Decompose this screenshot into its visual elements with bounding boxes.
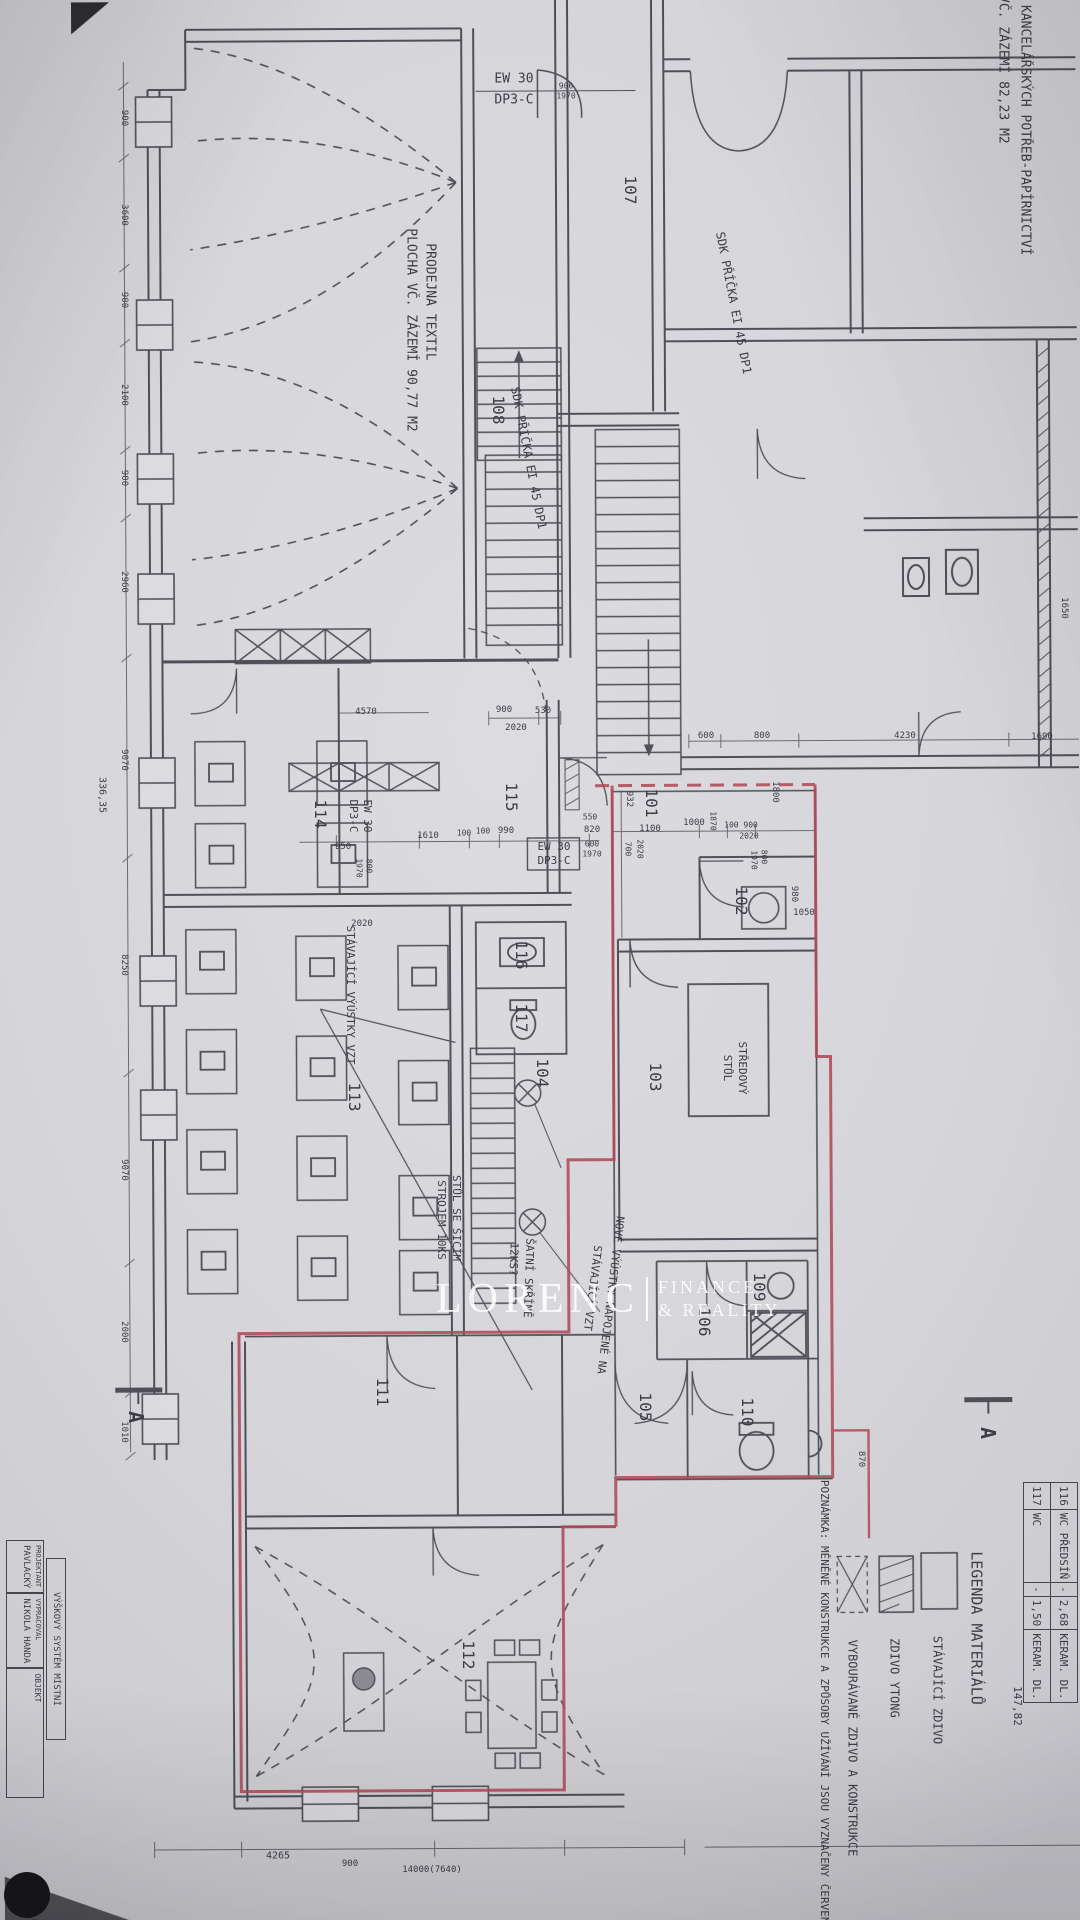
room-114: 114 xyxy=(311,800,329,829)
title-block-note: VÝŠKOVÝ SYSTÉM MÍSTNÍ xyxy=(46,1558,66,1740)
dim: 4570 xyxy=(355,707,377,717)
dim: 1000 xyxy=(683,818,705,828)
door-rating: DP3-C xyxy=(494,94,533,109)
table-note: STŘEDOVÝ xyxy=(736,1042,748,1095)
dim: 932 xyxy=(624,791,634,807)
room-104: 104 xyxy=(533,1059,551,1088)
vent-note: STÁVAJÍCÍ VÝÚSTKY VZT xyxy=(344,925,356,1064)
legend-item: STÁVAJÍCÍ ZDIVO xyxy=(930,1636,943,1744)
sewing-note: STROJEM 10KS xyxy=(435,1180,447,1259)
architect-logo xyxy=(4,1872,50,1918)
dim: 1650 xyxy=(1059,597,1069,619)
legend-title: LEGENDA MATERIÁLŮ xyxy=(968,1551,985,1705)
dim: 1800 xyxy=(770,781,780,803)
room-107: 107 xyxy=(621,176,639,205)
room-115: 115 xyxy=(502,783,520,812)
title-block: VÝŠKOVÝ SYSTÉM MÍSTNÍ PROJEKTANTPAVLACKÝ… xyxy=(2,1540,68,1908)
dim: 1970 xyxy=(582,851,601,860)
door-rating: EW 30 xyxy=(361,799,373,832)
dim: 1970 xyxy=(749,850,758,869)
dim: 530 xyxy=(535,706,551,716)
dim: 900 xyxy=(342,1859,358,1869)
dim: 600 xyxy=(585,841,599,850)
title-block-cell: PROJEKTANTPAVLACKÝ xyxy=(6,1540,44,1593)
dim: 870 xyxy=(856,1451,866,1467)
door-rating: EW 30 xyxy=(494,73,533,88)
dim: 4265 xyxy=(266,1850,290,1861)
dim: 1690 xyxy=(1031,732,1053,742)
room-108: 108 xyxy=(489,396,507,425)
room-116: 116 xyxy=(512,941,530,970)
dim: 900 xyxy=(496,705,512,715)
dim: 2960 xyxy=(119,571,129,593)
dim: 2000 xyxy=(119,1321,129,1343)
dim: 9070 xyxy=(119,749,129,771)
dim: 550 xyxy=(583,814,597,823)
table-note: STŮL xyxy=(721,1055,733,1082)
door-rating: EW 30 xyxy=(537,841,570,853)
dim: 800 xyxy=(364,859,373,873)
dim: 1870 xyxy=(708,811,717,830)
legend-item: ZDIVO YTONG xyxy=(887,1638,900,1717)
room-102: 102 xyxy=(732,887,750,916)
dim: 700 xyxy=(623,842,632,856)
locker-note: ŠATNÍ SKŘÍNĚ xyxy=(520,1238,535,1318)
legend-note: POZNÁMKA: MĚNĚNÉ KONSTRUKCE A ZPŮSOBY UŽ… xyxy=(818,1480,830,1920)
legend-item: VYBOURÁVANÉ ZDIVO A KONSTRUKCE xyxy=(845,1640,858,1857)
dim: 900 xyxy=(119,110,129,126)
locker-note: 12KS? xyxy=(506,1242,519,1276)
door-rating: DP3-C xyxy=(537,855,570,867)
dim: 1100 xyxy=(639,824,661,834)
room-110: 110 xyxy=(738,1398,756,1427)
room-103: 103 xyxy=(646,1063,664,1092)
title-block-cell: VYPRACOVALNIKOLA HANDA xyxy=(6,1593,44,1668)
table-total: 147,82 xyxy=(1011,1686,1023,1726)
dim: 100 xyxy=(457,830,471,839)
room-101: 101 xyxy=(642,789,660,818)
sewing-note: STŮL SE ŠICÍM xyxy=(450,1175,462,1261)
section-mark-a: A xyxy=(125,1411,147,1423)
title-block-rows: PROJEKTANTPAVLACKÝVYPRACOVALNIKOLA HANDA… xyxy=(6,1540,44,1798)
dim: 980 xyxy=(789,886,799,902)
dim: 1050 xyxy=(793,908,815,918)
dim: 1970 xyxy=(556,93,575,102)
room-area-table: 116WC PŘEDSÍŇ-2,68KERAM. DL.117WC-1,50KE… xyxy=(1023,1482,1078,1703)
dim: 2100 xyxy=(119,384,129,406)
dim: 900 xyxy=(119,470,129,486)
dim: 8250 xyxy=(119,954,129,976)
dim: 800 xyxy=(759,850,768,864)
room-109: 109 xyxy=(750,1273,768,1302)
dim-total: 336,35 xyxy=(96,777,107,813)
room-112: 112 xyxy=(459,1641,477,1670)
dim: 950 xyxy=(335,842,351,852)
dim: 900 xyxy=(119,292,129,308)
shop1-area: PLOCHA VČ. ZÁZEMÍ 82,23 M2 xyxy=(995,0,1010,144)
shop2-name: PRODEJNA TEXTIL xyxy=(422,243,437,360)
dim: 1610 xyxy=(417,831,439,841)
shop2-area: PLOCHA VČ. ZÁZEMÍ 90,77 M2 xyxy=(403,228,418,432)
room-113: 113 xyxy=(345,1083,363,1112)
room-111: 111 xyxy=(373,1378,391,1407)
room-table-row: 117WC-1,50KERAM. DL. xyxy=(1024,1483,1051,1703)
dim: 800 xyxy=(754,731,770,741)
floorplan-photo: PRODEJNA KANCELÁŘSKÝCH POTŘEB-PAPÍRNICTV… xyxy=(0,0,1080,1920)
dim: 3600 xyxy=(119,204,129,226)
room-105: 105 xyxy=(636,1393,654,1422)
room-117: 117 xyxy=(512,1004,530,1033)
dim: 2020 xyxy=(635,839,644,858)
dim: 100 xyxy=(476,828,490,837)
door-rating: DP3-C xyxy=(347,799,359,832)
room-table-row: 116WC PŘEDSÍŇ-2,68KERAM. DL. xyxy=(1051,1483,1078,1703)
dim: 1010 xyxy=(119,1421,129,1443)
dim: 1970 xyxy=(354,858,363,877)
dim: 4230 xyxy=(894,731,916,741)
floorplan-drawing xyxy=(0,0,1080,1920)
room-106: 106 xyxy=(695,1308,713,1337)
dim: 2020 xyxy=(505,723,527,733)
dim: 820 xyxy=(584,825,600,835)
title-block-objekt: OBJEKT xyxy=(6,1668,44,1798)
dim: 100 900 xyxy=(724,822,758,831)
dim: 9070 xyxy=(119,1159,129,1181)
shop1-name: PRODEJNA KANCELÁŘSKÝCH POTŘEB-PAPÍRNICTV… xyxy=(1017,0,1032,255)
section-mark-a: A xyxy=(977,1427,999,1439)
dim: 990 xyxy=(498,826,514,836)
dim: 2020 xyxy=(739,833,758,842)
dim: 900 xyxy=(559,83,573,92)
dim: 600 xyxy=(698,731,714,741)
dim: 14000(7640) xyxy=(402,1865,462,1875)
